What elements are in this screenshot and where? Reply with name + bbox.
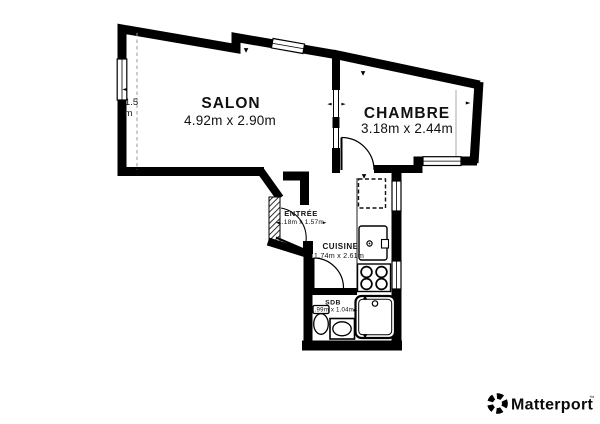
window-cuisine-right-upper (392, 181, 401, 211)
arrow-down-icon: ▼ (363, 333, 368, 340)
salon-dims: 4.92m x 2.90m (184, 113, 276, 128)
cuisine-label: CUISINE (323, 242, 359, 251)
partition-mid-post (333, 117, 340, 128)
trademark-symbol: ™ (589, 396, 595, 402)
window-salon-left (117, 59, 127, 100)
sdb-dims: 1.99m x 1.04m (311, 307, 354, 314)
arrow-down-icon: ▼ (244, 166, 249, 173)
cuisine-dims: 1.74m x 2.61m (314, 251, 364, 260)
wall-chambre-right (474, 82, 479, 163)
entree-dims: 1.18m x 1.57m (278, 219, 325, 226)
chambre-dims: 3.18m x 2.44m (361, 121, 453, 136)
window-cuisine-right-lower (392, 261, 401, 289)
sdb-label: SDB (325, 300, 341, 307)
arrow-left-icon: ◄ (308, 308, 312, 314)
low-ceiling-value: 1.5 (125, 97, 138, 108)
floor-plan-canvas: ◄ 1.5 m SALON 4.92m x 2.90m CHAMBRE 3.18… (0, 0, 600, 424)
shower (356, 296, 396, 338)
arrow-down-icon: ▼ (361, 70, 366, 77)
chambre-label: CHAMBRE (364, 105, 450, 122)
arrow-right-icon: ► (354, 308, 358, 314)
arrow-up-icon: ▲ (363, 294, 368, 301)
matterport-logo-text: Matterport (511, 397, 593, 414)
arrow-right-icon: ► (466, 100, 471, 107)
arrow-down-icon: ▼ (244, 47, 249, 54)
arrow-left-icon: ◄ (276, 220, 280, 226)
washbasin (330, 319, 355, 340)
window-chambre-bottom (423, 157, 461, 166)
appliance-dashed-box (359, 179, 386, 208)
low-ceiling-unit: m (125, 108, 133, 119)
arrow-down-icon: ▼ (362, 173, 367, 180)
arrow-right-icon: ► (323, 220, 327, 226)
salon-label: SALON (201, 95, 260, 112)
arrow-left-icon: ◄ (122, 86, 127, 93)
entree-label: ENTRÉE (284, 209, 317, 218)
stove (358, 264, 391, 292)
